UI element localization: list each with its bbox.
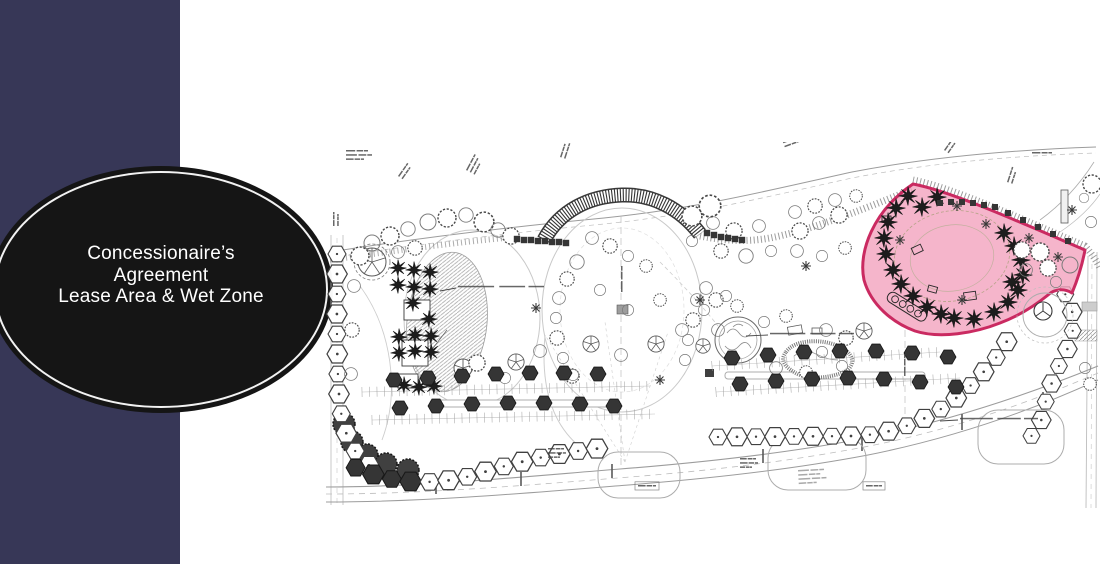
tree-symbol: [382, 471, 401, 488]
tree-symbol: [695, 295, 705, 305]
title-line-3: Lease Area & Wet Zone: [58, 286, 264, 308]
tree-symbol: [420, 214, 436, 230]
tree-symbol: [840, 371, 856, 385]
illegible-annotation: [398, 163, 412, 179]
tree-symbol: [475, 462, 497, 481]
tree-symbol: [327, 265, 348, 283]
tree-symbol: [785, 429, 803, 445]
tree-symbol: [758, 316, 769, 327]
tree-symbol: [831, 207, 847, 223]
tree-symbol: [622, 250, 633, 261]
tree-symbol: [1040, 260, 1056, 276]
title-line-1: Concessionaire’s: [58, 243, 264, 265]
tree-symbol: [981, 202, 987, 208]
tree-symbol: [959, 199, 965, 205]
illegible-annotation: [458, 286, 544, 288]
tree-symbol: [1032, 411, 1052, 428]
tree-symbol: [679, 354, 690, 365]
illegible-annotation: [960, 418, 1038, 420]
tree-symbol: [973, 363, 994, 381]
tree-symbol: [898, 418, 916, 434]
tree-symbol: [760, 348, 776, 362]
tree-symbol: [329, 366, 347, 382]
tree-symbol: [438, 471, 460, 490]
tree-symbol: [583, 336, 599, 352]
tree-symbol: [709, 293, 723, 307]
tree-symbol: [488, 367, 504, 381]
tree-symbol: [962, 378, 980, 394]
illegible-annotation: [621, 266, 623, 292]
tree-symbol: [765, 428, 786, 446]
tree-symbol: [420, 371, 436, 385]
tree-symbol: [914, 409, 935, 427]
tree-symbol: [390, 277, 407, 294]
tree-symbol: [550, 331, 564, 345]
tree-symbol: [1079, 362, 1090, 373]
tree-symbol: [732, 236, 738, 242]
tree-symbol: [550, 312, 561, 323]
tree-symbol: [801, 261, 811, 271]
tree-symbol: [494, 458, 513, 475]
illegible-annotation: [560, 142, 570, 159]
tree-symbol: [531, 449, 550, 466]
tree-symbol: [841, 427, 862, 445]
tree-symbol: [686, 235, 697, 246]
illegible-annotation: [904, 354, 906, 376]
tree-symbol: [724, 351, 740, 365]
tree-symbol: [1084, 378, 1097, 391]
tree-symbol: [727, 428, 748, 446]
tree-symbol: [363, 465, 385, 484]
tree-symbol: [469, 355, 485, 371]
tree-symbol: [1083, 175, 1100, 193]
tree-symbol: [528, 237, 534, 243]
tree-symbol: [878, 422, 899, 440]
tree-symbol: [648, 336, 664, 352]
tree-symbol: [803, 427, 824, 445]
tree-symbol: [590, 367, 606, 381]
tree-symbol: [454, 369, 470, 383]
tree-symbol: [563, 240, 569, 246]
tree-symbol: [1064, 323, 1081, 338]
tree-symbol: [1058, 340, 1078, 357]
tree-symbol: [981, 219, 991, 229]
illegible-callout: [940, 418, 1038, 421]
tree-symbol: [707, 217, 720, 230]
tree-symbol: [428, 399, 444, 413]
tree-symbol: [765, 245, 776, 256]
tree-symbol: [1042, 375, 1062, 392]
tree-symbol: [386, 373, 402, 387]
tree-symbol: [332, 406, 350, 422]
tree-symbol: [655, 375, 665, 385]
tree-symbol: [606, 399, 622, 413]
tree-symbol: [549, 445, 571, 464]
tree-symbol: [603, 239, 617, 253]
tree-symbol: [1067, 205, 1077, 215]
illegible-annotation: [944, 142, 957, 153]
tree-symbol: [699, 195, 721, 217]
tree-symbol: [816, 250, 827, 261]
tree-symbol: [948, 199, 954, 205]
tree-symbol: [420, 474, 439, 491]
tree-symbol: [732, 377, 748, 391]
tree-symbol: [739, 237, 745, 243]
illegible-annotation: [333, 212, 339, 226]
title-ellipse: Concessionaire’s Agreement Lease Area & …: [0, 171, 328, 408]
tree-symbol: [346, 443, 364, 459]
tree-symbol: [351, 247, 369, 265]
tree-symbol: [876, 372, 892, 386]
tree-symbol: [747, 429, 765, 445]
tree-symbol: [696, 339, 710, 353]
illegible-annotation: [798, 469, 827, 485]
tree-symbol: [654, 294, 667, 307]
tree-symbol: [521, 237, 527, 243]
tree-symbol: [753, 220, 766, 233]
tree-symbol: [820, 324, 833, 337]
tree-symbol: [1035, 224, 1041, 230]
tree-symbol: [912, 375, 928, 389]
tree-symbol: [856, 323, 872, 339]
tree-symbol: [327, 305, 348, 323]
tree-symbol: [328, 326, 346, 342]
tree-symbol: [392, 401, 408, 415]
tree-symbol: [560, 272, 574, 286]
title-line-2: Agreement: [58, 265, 264, 287]
tree-symbol: [850, 190, 863, 203]
tree-symbol: [861, 427, 879, 443]
tree-symbol: [768, 374, 784, 388]
tree-symbol: [839, 242, 852, 255]
tree-symbol: [792, 223, 808, 239]
tree-symbol: [714, 244, 728, 258]
tree-symbol: [569, 443, 588, 460]
tree-symbol: [345, 323, 359, 337]
tree-symbol: [1050, 359, 1067, 374]
tree-symbol: [739, 249, 753, 263]
tree-symbol: [522, 366, 538, 380]
tree-symbol: [987, 350, 1005, 366]
illegible-annotation: [863, 482, 885, 490]
tree-symbol: [829, 194, 842, 207]
tree-symbol: [553, 292, 566, 305]
tree-symbol: [937, 200, 943, 206]
tree-symbol: [346, 459, 365, 476]
tree-symbol: [549, 239, 555, 245]
tree-symbol: [676, 324, 689, 337]
tree-symbol: [381, 227, 399, 245]
illegible-annotation: [466, 154, 483, 175]
tree-symbol: [536, 396, 552, 410]
tree-symbol: [1037, 394, 1054, 409]
tree-symbol: [459, 208, 473, 222]
tree-symbol: [718, 234, 724, 240]
illegible-annotation: [740, 458, 758, 468]
tree-symbol: [508, 354, 524, 370]
tree-symbol: [542, 238, 548, 244]
tree-symbol: [400, 472, 422, 491]
tree-symbol: [682, 206, 702, 226]
tree-symbol: [464, 397, 480, 411]
tree-symbol: [1023, 429, 1040, 444]
tree-symbol: [1065, 238, 1071, 244]
illegible-annotation: [1007, 167, 1017, 184]
tree-symbol: [808, 199, 822, 213]
tree-symbol: [586, 439, 608, 458]
illegible-annotation: [780, 142, 809, 147]
tree-symbol: [328, 286, 346, 302]
tree-symbol: [996, 333, 1017, 351]
tree-symbol: [780, 310, 793, 323]
illegible-callout: [746, 333, 854, 336]
tree-symbol: [535, 238, 541, 244]
tree-symbol: [401, 222, 415, 236]
tree-symbol: [948, 380, 964, 394]
tree-symbol: [686, 313, 700, 327]
tree-symbol: [832, 344, 848, 358]
tree-symbol: [408, 241, 422, 255]
slide-title: Concessionaire’s Agreement Lease Area & …: [58, 243, 264, 308]
site-plan-image: [326, 142, 1100, 510]
illegible-annotation: [770, 333, 854, 335]
tree-symbol: [895, 235, 905, 245]
tree-symbol: [1005, 210, 1011, 216]
tree-symbol: [791, 245, 804, 258]
tree-symbol: [700, 282, 713, 295]
illegible-annotation: [1032, 152, 1052, 154]
tree-symbol: [940, 350, 956, 364]
tree-symbol: [1085, 216, 1096, 227]
tree-symbol: [557, 352, 568, 363]
tree-symbol: [328, 246, 346, 262]
tree-symbol: [725, 235, 731, 241]
tree-symbol: [390, 260, 407, 277]
tree-symbol: [796, 345, 812, 359]
tree-symbol: [531, 303, 541, 313]
tree-symbol: [932, 401, 950, 417]
tree-symbol: [731, 300, 744, 313]
tree-symbol: [711, 232, 717, 238]
tree-symbol: [709, 429, 727, 445]
tree-symbol: [594, 284, 605, 295]
tree-symbol: [406, 262, 423, 279]
tree-symbol: [868, 344, 884, 358]
tree-symbol: [789, 206, 802, 219]
tree-symbol: [327, 345, 348, 363]
tree-symbol: [500, 396, 516, 410]
tree-symbol: [804, 372, 820, 386]
tree-symbol: [1031, 243, 1049, 261]
tree-symbol: [348, 280, 361, 293]
tree-symbol: [957, 295, 967, 305]
tree-symbol: [640, 260, 653, 273]
tree-symbol: [992, 204, 998, 210]
tree-symbol: [336, 424, 357, 442]
tree-symbol: [1053, 252, 1063, 262]
tree-symbol: [438, 209, 456, 227]
tree-symbol: [1014, 242, 1030, 258]
tree-symbol: [823, 428, 841, 444]
tree-symbol: [458, 469, 477, 486]
tree-symbol: [1020, 217, 1026, 223]
tree-symbol: [1050, 231, 1056, 237]
tree-symbol: [1024, 233, 1034, 243]
tree-symbol: [329, 385, 350, 403]
illegible-annotation: [346, 150, 372, 160]
tree-symbol: [1079, 193, 1089, 203]
tree-symbol: [904, 346, 920, 360]
tree-symbol: [572, 397, 588, 411]
tree-symbol: [704, 230, 710, 236]
tree-symbol: [514, 236, 520, 242]
tree-symbol: [556, 366, 572, 380]
tree-symbol: [556, 239, 562, 245]
slide-canvas: Concessionaire’s Agreement Lease Area & …: [0, 0, 1100, 564]
tree-symbol: [970, 200, 976, 206]
tree-symbol: [511, 452, 533, 471]
tree-symbol: [698, 304, 709, 315]
